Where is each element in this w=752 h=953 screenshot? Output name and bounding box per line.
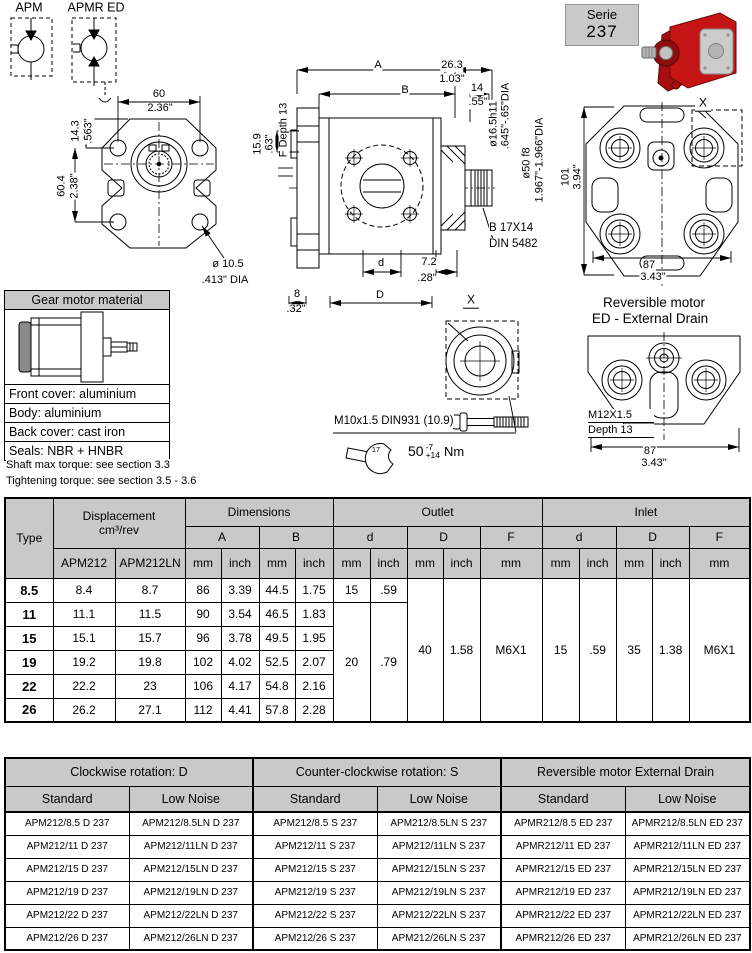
- cell: 1.83: [295, 602, 333, 626]
- wrench-size-label: 17: [371, 446, 381, 454]
- model-code: APM212/22LN D 237: [129, 904, 253, 927]
- table-header-row: APM212 APM212LN mm inch mm inch mm inch …: [5, 548, 750, 578]
- col-displacement: Displacement cm³/rev: [53, 498, 185, 548]
- cell: 11.5: [115, 602, 185, 626]
- side-shaft-ext-mm: 26.3: [440, 60, 463, 72]
- model-code: APM212/8.5LN D 237: [129, 812, 253, 835]
- model-code: APM212/8.5 D 237: [5, 812, 129, 835]
- side-base-mm: 8: [293, 289, 301, 301]
- table-row: APM212/26 D 237 APM212/26LN D 237 APM212…: [5, 927, 750, 950]
- cell: 57.8: [259, 698, 295, 722]
- cell: 52.5: [259, 650, 295, 674]
- model-code: APM212/11LN S 237: [377, 835, 501, 858]
- wrench-icon: [346, 434, 414, 474]
- cell: 3.54: [221, 602, 259, 626]
- side-base-in: .32": [285, 304, 306, 316]
- table-row: APM212/19 D 237 APM212/19LN D 237 APM212…: [5, 881, 750, 904]
- col-outlet-d: d: [333, 526, 407, 548]
- cell-merged: 15: [542, 578, 579, 722]
- model-code: APMR212/8.5LN ED 237: [625, 812, 750, 835]
- col-apm212: APM212: [53, 548, 115, 578]
- side-port-depth-mm: 7.2: [420, 257, 437, 269]
- cell: 54.8: [259, 674, 295, 698]
- material-box-title: Gear motor material: [5, 291, 169, 310]
- rear-height-mm: 101: [561, 167, 572, 187]
- cell-merged: 40: [407, 578, 443, 722]
- front-width-mm: 60: [152, 89, 166, 101]
- table-row: APM212/22 D 237 APM212/22LN D 237 APM212…: [5, 904, 750, 927]
- model-code: APMR212/19 ED 237: [501, 881, 625, 904]
- reversible-depth: Depth 13: [588, 424, 654, 438]
- col-type: Type: [5, 498, 53, 578]
- unit-inch: inch: [221, 548, 259, 578]
- cell: 4.02: [221, 650, 259, 674]
- rear-width-mm: 87: [642, 260, 656, 272]
- side-shaft-dia-in: .645"-.65"DIA: [501, 82, 512, 151]
- model-code: APM212/22 S 237: [253, 904, 377, 927]
- model-code: APM212/22 D 237: [5, 904, 129, 927]
- rear-x-callout: X: [695, 97, 711, 112]
- cell-merged: .79: [370, 602, 407, 722]
- cell-merged: M6X1: [480, 578, 542, 722]
- model-code: APM212/11 S 237: [253, 835, 377, 858]
- side-dim-a: A: [373, 60, 382, 72]
- col-inlet-F: F: [689, 526, 750, 548]
- col-inlet-d: d: [542, 526, 616, 548]
- front-f-depth: F Depth 13: [279, 102, 290, 158]
- material-row-seals: Seals: NBR + HNBR: [5, 441, 169, 460]
- apmr-symbol-label: APMR ED: [67, 1, 126, 14]
- model-code: APMR212/26LN ED 237: [625, 927, 750, 950]
- side-spline-len-mm: 14: [470, 83, 484, 95]
- cell-merged: M6X1: [689, 578, 750, 722]
- model-code: APMR212/15 ED 237: [501, 858, 625, 881]
- model-code: APM212/15 S 237: [253, 858, 377, 881]
- apm-symbol: [8, 16, 58, 82]
- cell: 22.2: [53, 674, 115, 698]
- col-outlet: Outlet: [333, 498, 542, 526]
- side-shaft-dia: ø16.5h11: [489, 100, 500, 148]
- note-tightening-torque: Tightening torque: see section 3.5 - 3.6: [6, 475, 196, 487]
- front-hole-dia-mm: ø 10.5: [211, 259, 244, 271]
- cell: 15.1: [53, 626, 115, 650]
- model-code: APMR212/15LN ED 237: [625, 858, 750, 881]
- cell: 44.5: [259, 578, 295, 602]
- unit-mm: mm: [333, 548, 370, 578]
- series-badge: Serie 237: [565, 4, 639, 46]
- cell-type: 15: [5, 626, 53, 650]
- model-code: APMR212/8.5 ED 237: [501, 812, 625, 835]
- model-code: APM212/15LN D 237: [129, 858, 253, 881]
- series-number: 237: [566, 22, 638, 42]
- side-shaft-ext-in: 1.03": [438, 74, 465, 86]
- side-dim-d: d: [377, 258, 385, 270]
- model-code: APM212/22LN S 237: [377, 904, 501, 927]
- front-height-in: 2.38": [70, 172, 81, 199]
- model-code: APM212/11 D 237: [5, 835, 129, 858]
- dimensions-table: Type Displacement cm³/rev Dimensions Out…: [4, 497, 751, 723]
- cell-type: 22: [5, 674, 53, 698]
- series-label: Serie: [566, 7, 638, 22]
- reversible-width-in: 3.43": [640, 458, 667, 470]
- detail-x-callout: X: [463, 294, 479, 309]
- sub-standard: Standard: [501, 786, 625, 812]
- model-code: APM212/26LN D 237: [129, 927, 253, 950]
- col-inlet-D: D: [616, 526, 689, 548]
- side-port-depth-in: .28": [416, 273, 437, 285]
- side-view-drawing: [287, 80, 497, 292]
- unit-inch: inch: [370, 548, 407, 578]
- table-header-row: Clockwise rotation: D Counter-clockwise …: [5, 758, 750, 786]
- material-box: Gear motor material Front cover: alumini…: [4, 290, 170, 461]
- unit-inch: inch: [652, 548, 689, 578]
- model-code: APMR212/22 ED 237: [501, 904, 625, 927]
- group-counter-clockwise: Counter-clockwise rotation: S: [253, 758, 501, 786]
- col-outlet-F: F: [480, 526, 542, 548]
- unit-mm: mm: [616, 548, 652, 578]
- side-dim-D: D: [375, 290, 385, 302]
- side-dim-b: B: [400, 85, 409, 97]
- cell: 4.17: [221, 674, 259, 698]
- model-code: APM212/26LN S 237: [377, 927, 501, 950]
- torque-unit: Nm: [444, 444, 464, 459]
- cell-type: 19: [5, 650, 53, 674]
- displacement-label: Displacement: [54, 509, 185, 523]
- side-spline-len-in: .55": [467, 97, 488, 109]
- side-spline-type: B 17X14: [489, 222, 533, 235]
- side-spline-std: DIN 5482: [489, 238, 538, 251]
- apm-symbol-label: APM: [14, 1, 43, 14]
- group-clockwise: Clockwise rotation: D: [5, 758, 253, 786]
- front-hole-dia-in: .413" DIA: [201, 275, 250, 287]
- cell: 3.78: [221, 626, 259, 650]
- front-view-drawing: [98, 118, 220, 250]
- torque-spec: 50 -7 +14 Nm: [408, 440, 464, 462]
- sub-low-noise: Low Noise: [129, 786, 253, 812]
- note-shaft-torque: Shaft max torque: see section 3.3: [6, 459, 170, 471]
- side-pilot-dia: ø50 f8: [522, 146, 533, 179]
- sub-standard: Standard: [5, 786, 129, 812]
- front-port-offset-mm: 15.9: [253, 132, 264, 155]
- unit-inch: inch: [579, 548, 616, 578]
- cell: 1.95: [295, 626, 333, 650]
- cell-merged: 1.58: [443, 578, 480, 722]
- cell: 23: [115, 674, 185, 698]
- cell: 2.28: [295, 698, 333, 722]
- cell: 102: [185, 650, 221, 674]
- torque-value: 50: [408, 443, 424, 459]
- apmr-symbol: [68, 16, 124, 108]
- sub-standard: Standard: [253, 786, 377, 812]
- sub-low-noise: Low Noise: [625, 786, 750, 812]
- sub-low-noise: Low Noise: [377, 786, 501, 812]
- cell: 2.07: [295, 650, 333, 674]
- cell: 11.1: [53, 602, 115, 626]
- model-code: APMR212/19LN ED 237: [625, 881, 750, 904]
- unit-inch: inch: [443, 548, 480, 578]
- cell: 15: [333, 578, 370, 602]
- material-row-front-cover: Front cover: aluminium: [5, 384, 169, 403]
- reversible-width-mm: 87: [643, 446, 657, 458]
- model-code: APM212/19LN S 237: [377, 881, 501, 904]
- torque-tolerance-plus: +14: [426, 451, 440, 460]
- cell-merged: .59: [579, 578, 616, 722]
- model-code: APM212/19 D 237: [5, 881, 129, 904]
- x-detail-drawing: [440, 315, 545, 407]
- col-dimensions: Dimensions: [185, 498, 333, 526]
- model-code: APM212/26 D 237: [5, 927, 129, 950]
- table-row: APM212/11 D 237 APM212/11LN D 237 APM212…: [5, 835, 750, 858]
- reversible-title-line2: ED - External Drain: [591, 312, 709, 326]
- table-row: 8.5 8.4 8.7 86 3.39 44.5 1.75 15 .59 40 …: [5, 578, 750, 602]
- cell-merged: 35: [616, 578, 652, 722]
- model-code: APMR212/11 ED 237: [501, 835, 625, 858]
- front-offset-in: .563": [84, 117, 95, 144]
- cell: 96: [185, 626, 221, 650]
- product-photo: [640, 5, 750, 100]
- bolt-spec-label: M10x1.5 DIN931 (10.9): [334, 415, 454, 428]
- table-header-row: Type Displacement cm³/rev Dimensions Out…: [5, 498, 750, 526]
- model-code: APM212/11LN D 237: [129, 835, 253, 858]
- cell-merged: 20: [333, 602, 370, 722]
- model-code: APM212/15LN S 237: [377, 858, 501, 881]
- model-code: APM212/19LN D 237: [129, 881, 253, 904]
- front-height-mm: 60.4: [57, 174, 68, 197]
- cell: 49.5: [259, 626, 295, 650]
- front-width-in: 2.36": [146, 103, 173, 115]
- rear-width-in: 3.43": [639, 272, 666, 284]
- cell-type: 8.5: [5, 578, 53, 602]
- cell: 90: [185, 602, 221, 626]
- cell: 46.5: [259, 602, 295, 626]
- model-code: APM212/26 S 237: [253, 927, 377, 950]
- cell: 1.75: [295, 578, 333, 602]
- side-pilot-dia-in: 1.967"-1.966"DIA: [535, 117, 546, 204]
- table-row: APM212/8.5 D 237 APM212/8.5LN D 237 APM2…: [5, 812, 750, 835]
- datasheet-page: APM APMR ED Serie 237: [0, 0, 752, 953]
- cell: 27.1: [115, 698, 185, 722]
- reversible-title-line1: Reversible motor: [602, 296, 706, 310]
- unit-mm: mm: [185, 548, 221, 578]
- motor-side-figure: [11, 310, 161, 384]
- unit-mm: mm: [689, 548, 750, 578]
- unit-mm: mm: [542, 548, 579, 578]
- cell-type: 26: [5, 698, 53, 722]
- cell: 8.4: [53, 578, 115, 602]
- unit-mm: mm: [407, 548, 443, 578]
- cell: 3.39: [221, 578, 259, 602]
- group-reversible: Reversible motor External Drain: [501, 758, 750, 786]
- model-code: APM212/15 D 237: [5, 858, 129, 881]
- unit-mm: mm: [480, 548, 542, 578]
- model-code: APM212/8.5LN S 237: [377, 812, 501, 835]
- cell: 106: [185, 674, 221, 698]
- table-row: APM212/15 D 237 APM212/15LN D 237 APM212…: [5, 858, 750, 881]
- reversible-thread: M12X1.5: [588, 409, 654, 423]
- col-apm212ln: APM212LN: [115, 548, 185, 578]
- cell-merged: 1.38: [652, 578, 689, 722]
- front-port-offset-in: .63": [265, 133, 276, 154]
- table-header-row: Standard Low Noise Standard Low Noise St…: [5, 786, 750, 812]
- cell: 8.7: [115, 578, 185, 602]
- material-row-body: Body: aluminium: [5, 403, 169, 422]
- cell: 19.2: [53, 650, 115, 674]
- rear-height-in: 3.94": [573, 163, 584, 190]
- unit-inch: inch: [295, 548, 333, 578]
- material-motor-figure: [5, 310, 169, 384]
- col-inlet: Inlet: [542, 498, 750, 526]
- cell: 86: [185, 578, 221, 602]
- front-offset-mm: 14.3: [71, 119, 82, 142]
- col-b: B: [259, 526, 333, 548]
- cell: 15.7: [115, 626, 185, 650]
- cell: 19.8: [115, 650, 185, 674]
- model-codes-table: Clockwise rotation: D Counter-clockwise …: [4, 757, 751, 951]
- rear-view-drawing: [576, 102, 748, 294]
- model-code: APM212/19 S 237: [253, 881, 377, 904]
- cell-type: 11: [5, 602, 53, 626]
- displacement-unit: cm³/rev: [54, 523, 185, 537]
- cell: 4.41: [221, 698, 259, 722]
- cell: 26.2: [53, 698, 115, 722]
- col-a: A: [185, 526, 259, 548]
- unit-mm: mm: [259, 548, 295, 578]
- cell: .59: [370, 578, 407, 602]
- col-outlet-D: D: [407, 526, 480, 548]
- cell: 112: [185, 698, 221, 722]
- cell: 2.16: [295, 674, 333, 698]
- model-code: APMR212/11LN ED 237: [625, 835, 750, 858]
- model-code: APMR212/26 ED 237: [501, 927, 625, 950]
- material-row-back-cover: Back cover: cast iron: [5, 422, 169, 441]
- model-code: APMR212/22LN ED 237: [625, 904, 750, 927]
- model-code: APM212/8.5 S 237: [253, 812, 377, 835]
- bolt-figure: [452, 412, 532, 432]
